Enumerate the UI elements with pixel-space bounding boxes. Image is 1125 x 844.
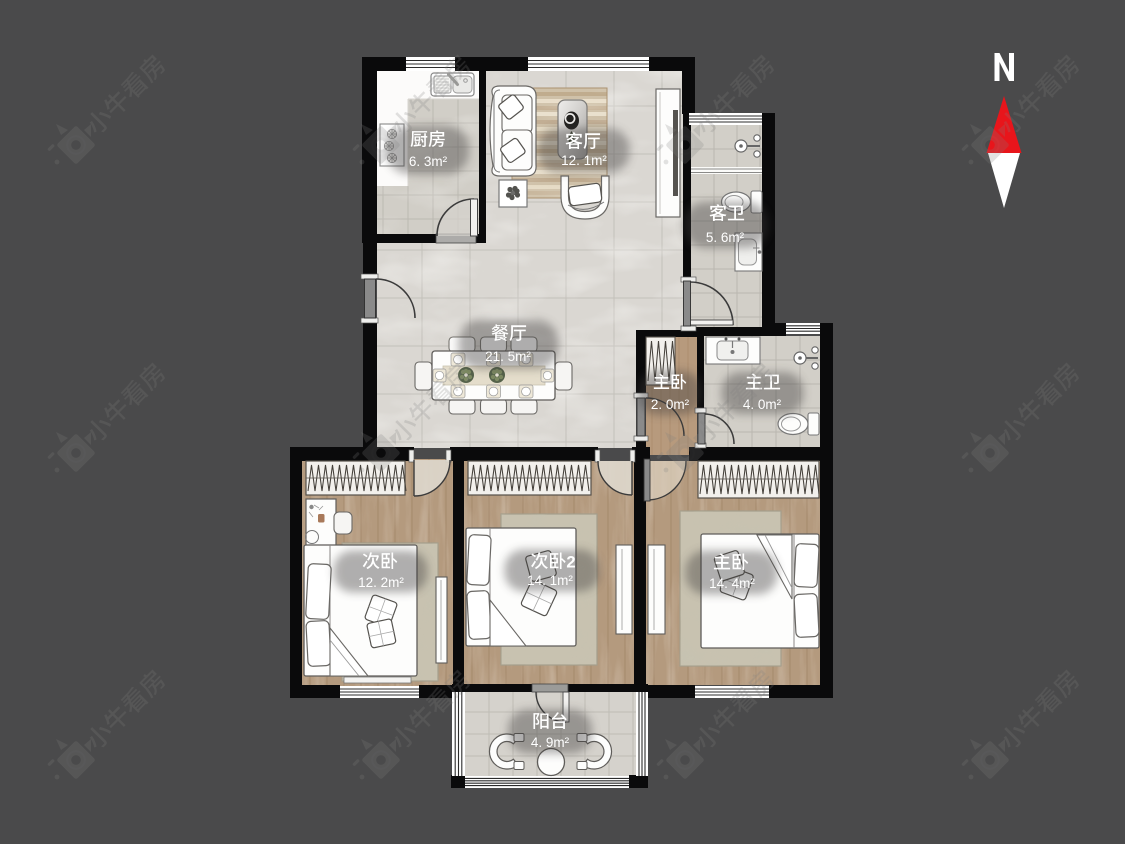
svg-text:14. 1m²: 14. 1m² xyxy=(527,573,573,588)
svg-text:12. 2m²: 12. 2m² xyxy=(358,575,404,590)
svg-text:2: 2 xyxy=(566,553,575,572)
svg-text:2. 0m²: 2. 0m² xyxy=(651,397,690,412)
svg-text:4. 9m²: 4. 9m² xyxy=(531,735,570,750)
svg-text:5. 6m²: 5. 6m² xyxy=(706,230,745,245)
svg-text:21. 5m²: 21. 5m² xyxy=(485,349,531,364)
svg-text:12. 1m²: 12. 1m² xyxy=(561,153,607,168)
svg-text:6. 3m²: 6. 3m² xyxy=(409,154,448,169)
svg-text:14. 4m²: 14. 4m² xyxy=(709,576,755,591)
